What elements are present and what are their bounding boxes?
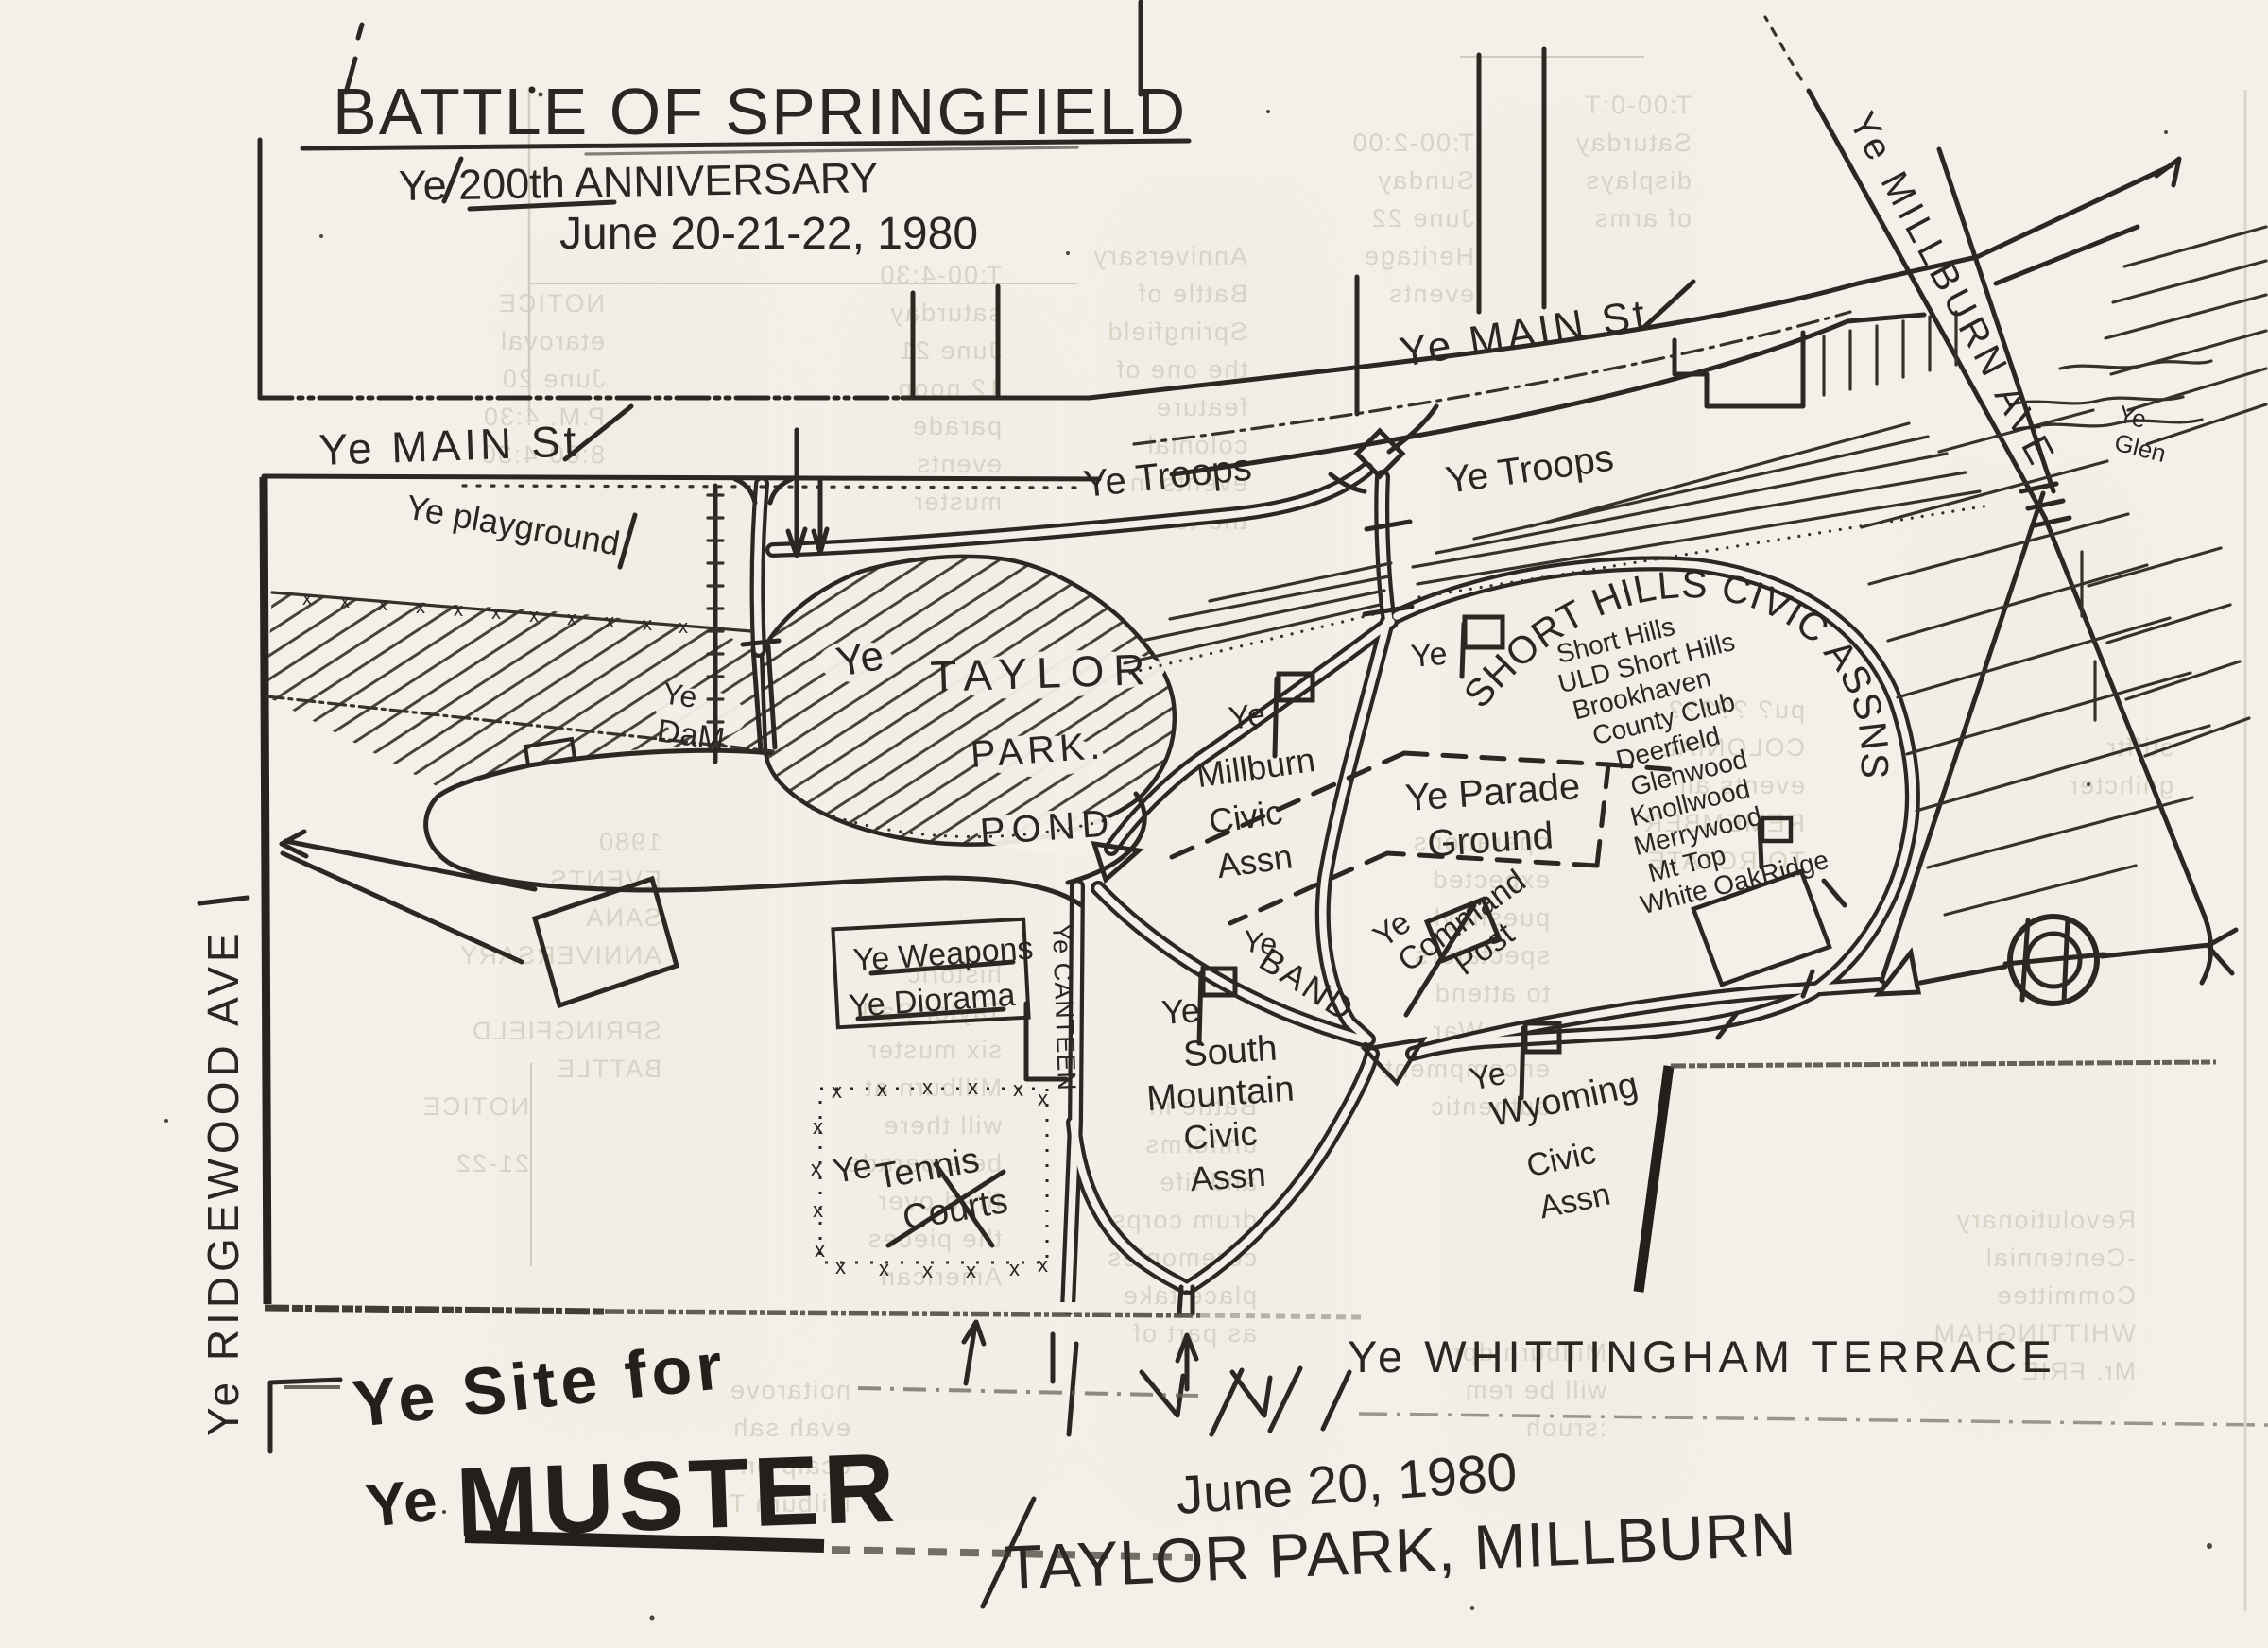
svg-text:x: x	[643, 614, 652, 635]
svg-text:Ground: Ground	[1426, 815, 1555, 865]
svg-text:1980: 1980	[597, 828, 661, 856]
svg-text:South: South	[1182, 1029, 1279, 1075]
svg-text:Ye: Ye	[1227, 696, 1267, 737]
svg-text:x: x	[340, 592, 350, 612]
svg-text:Ye: Ye	[833, 632, 887, 686]
svg-text:will there: will there	[882, 1111, 1003, 1140]
svg-text:Ye MAIN St: Ye MAIN St	[318, 416, 581, 474]
svg-text:x: x	[966, 1259, 976, 1282]
svg-text:Battle of: Battle of	[1137, 280, 1247, 308]
svg-text:x: x	[491, 603, 501, 624]
svg-text:Ye: Ye	[1409, 636, 1449, 675]
svg-text:June 20-21-22, 1980: June 20-21-22, 1980	[559, 209, 978, 259]
svg-text:x: x	[605, 611, 614, 632]
svg-text:the one of: the one of	[1115, 355, 1247, 384]
svg-text:NOTICE: NOTICE	[421, 1092, 529, 1121]
svg-text:x: x	[1038, 1253, 1048, 1277]
svg-text:x: x	[832, 1079, 842, 1103]
svg-text:x: x	[813, 1115, 823, 1139]
svg-text:etaroval: etaroval	[499, 327, 605, 355]
svg-text:American: American	[879, 1262, 1002, 1291]
svg-text:x: x	[1009, 1257, 1020, 1280]
svg-text:to attend: to attend	[1434, 979, 1550, 1007]
svg-text:BATTLE OF SPRINGFIELD: BATTLE OF SPRINGFIELD	[333, 75, 1187, 148]
svg-text:Ye CANTEEN: Ye CANTEEN	[1047, 923, 1081, 1091]
svg-text:x: x	[813, 1198, 823, 1222]
svg-text:T:00-4:30: T:00-4:30	[878, 261, 1002, 289]
svg-text:Saturday: Saturday	[1574, 129, 1692, 157]
svg-text:Civic: Civic	[1182, 1113, 1259, 1157]
svg-text:x: x	[378, 594, 387, 615]
svg-text:x: x	[302, 589, 312, 609]
svg-text:21-22: 21-22	[455, 1149, 529, 1177]
svg-text:Ye: Ye	[363, 1466, 440, 1540]
svg-text:T:00-0:T: T:00-0:T	[1583, 91, 1692, 119]
svg-text::sruoh: :sruoh	[1524, 1414, 1606, 1442]
svg-text:Ye WHITTINGHAM TERRACE: Ye WHITTINGHAM TERRACE	[1348, 1331, 2056, 1382]
svg-text:Assn: Assn	[1189, 1155, 1267, 1198]
svg-text:Ye: Ye	[661, 676, 699, 714]
svg-text:Sunday: Sunday	[1376, 166, 1474, 195]
svg-text:June 22: June 22	[1370, 204, 1474, 232]
svg-text:displays: displays	[1584, 166, 1692, 195]
svg-text:x: x	[529, 606, 539, 627]
svg-text:SPRINGFIELD: SPRINGFIELD	[471, 1017, 661, 1045]
svg-text:x: x	[815, 1238, 825, 1262]
svg-text:x: x	[811, 1157, 821, 1180]
svg-text:SANA: SANA	[584, 903, 661, 932]
svg-text:x: x	[1038, 1087, 1048, 1110]
svg-text:Ye: Ye	[1160, 990, 1201, 1032]
svg-text:saturday: saturday	[888, 299, 1002, 327]
svg-text:x: x	[567, 609, 576, 629]
svg-text:MUSTER: MUSTER	[455, 1433, 902, 1558]
svg-text:events: events	[1387, 280, 1474, 308]
svg-text:Ye: Ye	[1467, 1056, 1510, 1098]
svg-text:x: x	[922, 1075, 933, 1099]
svg-text:noitarove: noitarove	[729, 1376, 850, 1404]
svg-text:x: x	[968, 1075, 978, 1099]
svg-text:Committee: Committee	[1995, 1281, 2136, 1310]
svg-text:x: x	[835, 1255, 846, 1279]
svg-text:T:00-2:00: T:00-2:00	[1350, 129, 1474, 157]
svg-text:x: x	[416, 597, 425, 618]
svg-text:BATTLE: BATTLE	[556, 1055, 661, 1083]
svg-text:-Centennial: -Centennial	[1984, 1244, 2136, 1272]
svg-text:June 20: June 20	[501, 365, 605, 393]
svg-text:of arms: of arms	[1593, 204, 1692, 232]
svg-text:feature: feature	[1155, 393, 1247, 421]
svg-text:Ye: Ye	[830, 1145, 874, 1190]
svg-text:muster: muster	[912, 488, 1002, 516]
svg-text:x: x	[1013, 1077, 1023, 1101]
svg-text:Springfield: Springfield	[1106, 318, 1247, 346]
svg-text:drum corps: drum corps	[1110, 1206, 1257, 1234]
svg-text:parade: parade	[911, 412, 1002, 440]
svg-text:Ye 200th ANNIVERSARY: Ye 200th ANNIVERSARY	[398, 153, 879, 210]
svg-text:Anniversary: Anniversary	[1091, 242, 1247, 270]
svg-text:x: x	[679, 617, 688, 638]
svg-text:Heritage: Heritage	[1363, 242, 1474, 270]
svg-text:x: x	[922, 1259, 933, 1282]
svg-text:NOTICE: NOTICE	[497, 289, 605, 318]
svg-text:as part of: as part of	[1131, 1319, 1257, 1348]
svg-text:x: x	[879, 1257, 889, 1280]
svg-text:six muster: six muster	[867, 1036, 1002, 1064]
svg-text:TAYLOR: TAYLOR	[930, 644, 1156, 701]
svg-text:Revolutionary: Revolutionary	[1955, 1206, 2136, 1234]
svg-text:x: x	[454, 600, 463, 621]
svg-text:events: events	[915, 450, 1002, 478]
svg-text:x: x	[877, 1077, 887, 1101]
svg-text:Ye RIDGEWOOD AVE: Ye RIDGEWOOD AVE	[198, 928, 248, 1436]
